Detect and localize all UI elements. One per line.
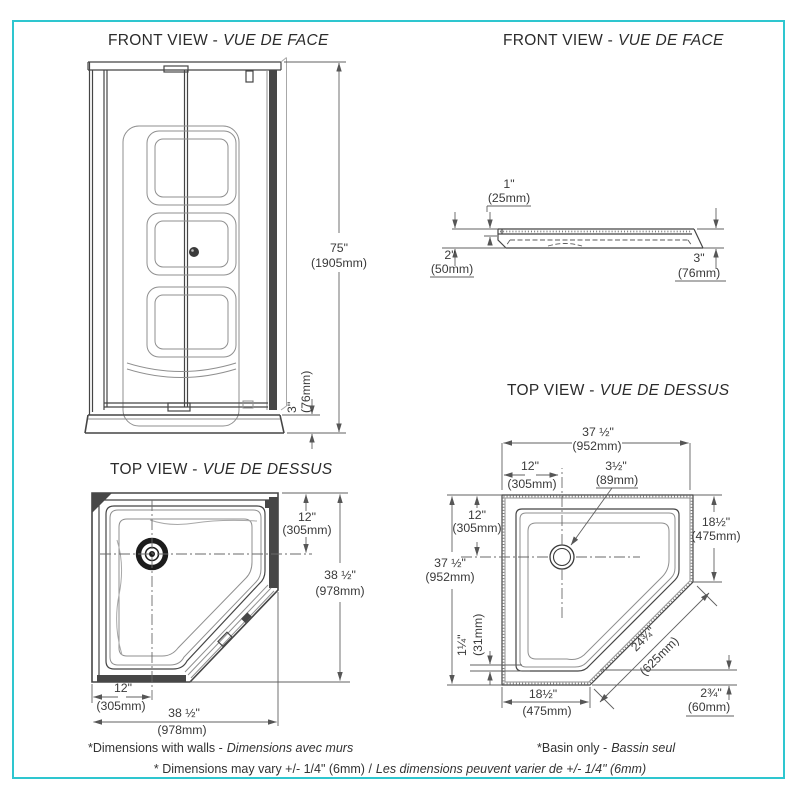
- top-view-unit-drawing: 12" (305mm) 38 ½" (978mm) 12" (305mm) 38…: [80, 455, 372, 740]
- footnote-basin-fr: Bassin seul: [611, 741, 675, 755]
- basin-rim: [106, 506, 265, 669]
- height-dimension: 75" (1905mm): [284, 62, 367, 433]
- dim-depth-in: 37 ½": [434, 556, 466, 570]
- back-wall-shelves: [123, 126, 239, 426]
- title-en: FRONT VIEW -: [108, 32, 218, 49]
- drain-offset-dimension-right: 12" (305mm): [282, 493, 348, 553]
- drain-offset-dimension-bottom: 12" (305mm): [92, 681, 151, 713]
- footnote-tolerance-fr: Les dimensions peuvent varier de +/- 1/4…: [376, 762, 646, 776]
- dim-diagonal-in: 24¾": [628, 624, 658, 654]
- diagonal-dimension: 24¾" (625mm): [594, 586, 717, 709]
- title-fr: VUE DE FACE: [618, 32, 724, 49]
- drain-x-dimension: 12" (305mm): [504, 459, 558, 491]
- dim-width-mm: (952mm): [572, 439, 621, 453]
- threshold-dimension: 2¾" (60mm): [592, 655, 737, 716]
- footnote-walls-en: *Dimensions with walls -: [88, 741, 223, 755]
- dim-drain-left-in: 12": [114, 681, 132, 695]
- bottom-wall-dimension: 18½" (475mm): [502, 687, 590, 718]
- footnote-walls: *Dimensions with walls -Dimensions avec …: [88, 741, 353, 755]
- dim-drain-x-mm: (305mm): [507, 477, 556, 491]
- footnote-tolerance: * Dimensions may vary +/- 1/4" (6mm) /Le…: [0, 762, 800, 776]
- dim-right-wall-in: 18½": [702, 515, 730, 529]
- spec-sheet: FRONT VIEW -VUE DE FACE FRONT VIEW -VUE …: [0, 0, 800, 800]
- dim-lip-mm: (25mm): [488, 191, 530, 205]
- dim-width-mm: (978mm): [157, 723, 206, 737]
- base-profile: [498, 229, 703, 248]
- drain-diameter-callout: 3½" (89mm): [571, 459, 638, 545]
- footnote-basin: *Basin only -Bassin seul: [537, 741, 675, 755]
- dim-right-mm: (76mm): [678, 266, 720, 280]
- dim-drain-y-mm: (305mm): [452, 521, 501, 535]
- front-view-unit-drawing: 75" (1905mm) 3" (76mm): [80, 52, 375, 444]
- dim-left-mm: (50mm): [431, 262, 473, 276]
- dim-left-in: 2": [444, 248, 455, 262]
- front-view-base-title: FRONT VIEW -VUE DE FACE: [503, 32, 724, 50]
- dim-ledge-in: 1¼": [455, 635, 469, 656]
- dim-curb-mm: (76mm): [299, 371, 313, 413]
- top-view-base-drawing: 37 ½" (952mm) 12" (305mm) 3½" (89mm) 12"…: [428, 405, 745, 730]
- dim-drain-top-in: 12": [298, 510, 316, 524]
- dim-drain-top-mm: (305mm): [282, 523, 331, 537]
- dim-lip-in: 1": [503, 177, 514, 191]
- left-height-dimension: 2" (50mm): [430, 212, 506, 277]
- dim-right-in: 3": [693, 251, 704, 265]
- dim-curb-in: 3": [285, 402, 299, 413]
- title-fr: VUE DE FACE: [223, 32, 329, 49]
- door-knob: [189, 247, 199, 257]
- title-en: TOP VIEW -: [507, 382, 595, 399]
- footnote-walls-fr: Dimensions avec murs: [227, 741, 353, 755]
- footnote-tolerance-en: * Dimensions may vary +/- 1/4" (6mm) /: [154, 762, 372, 776]
- dim-threshold-in: 2¾": [700, 686, 721, 700]
- footnote-basin-en: *Basin only -: [537, 741, 607, 755]
- front-view-unit-title: FRONT VIEW -VUE DE FACE: [108, 32, 329, 50]
- ledge-dimension: 1¼" (31mm): [455, 614, 530, 685]
- drain-y-dimension: 12" (305mm): [447, 495, 502, 556]
- right-wall-dimension: 18½" (475mm): [691, 495, 740, 582]
- right-height-dimension: 3" (76mm): [675, 208, 726, 281]
- dim-height-in: 75": [330, 241, 348, 255]
- title-fr: VUE DE DESSUS: [600, 382, 730, 399]
- dim-side-in: 38 ½": [324, 568, 356, 582]
- dim-drain-left-mm: (305mm): [96, 699, 145, 713]
- dim-drain-x-in: 12": [521, 459, 539, 473]
- basin-rim: [516, 509, 679, 671]
- dim-bottom-wall-in: 18½": [529, 687, 557, 701]
- front-view-base-drawing: 1" (25mm) 2" (50mm) 3" (76mm): [430, 160, 740, 300]
- dim-width-in: 37 ½": [582, 425, 614, 439]
- dim-side-mm: (978mm): [315, 584, 364, 598]
- dim-width-in: 38 ½": [168, 706, 200, 720]
- dim-bottom-wall-mm: (475mm): [522, 704, 571, 718]
- drain: [100, 500, 312, 700]
- dim-ledge-mm: (31mm): [471, 614, 485, 656]
- dim-drain-dia-in: 3½": [605, 459, 626, 473]
- curb-height-dimension: 3" (76mm): [282, 371, 320, 449]
- enclosure-outline: [88, 58, 287, 416]
- dim-depth-mm: (952mm): [425, 570, 474, 584]
- top-view-base-title: TOP VIEW -VUE DE DESSUS: [507, 382, 729, 400]
- dim-threshold-mm: (60mm): [688, 700, 730, 714]
- dim-drain-dia-mm: (89mm): [596, 473, 638, 487]
- title-en: FRONT VIEW -: [503, 32, 613, 49]
- dim-height-mm: (1905mm): [311, 256, 367, 270]
- dim-right-wall-mm: (475mm): [691, 529, 740, 543]
- dim-drain-y-in: 12": [468, 508, 486, 522]
